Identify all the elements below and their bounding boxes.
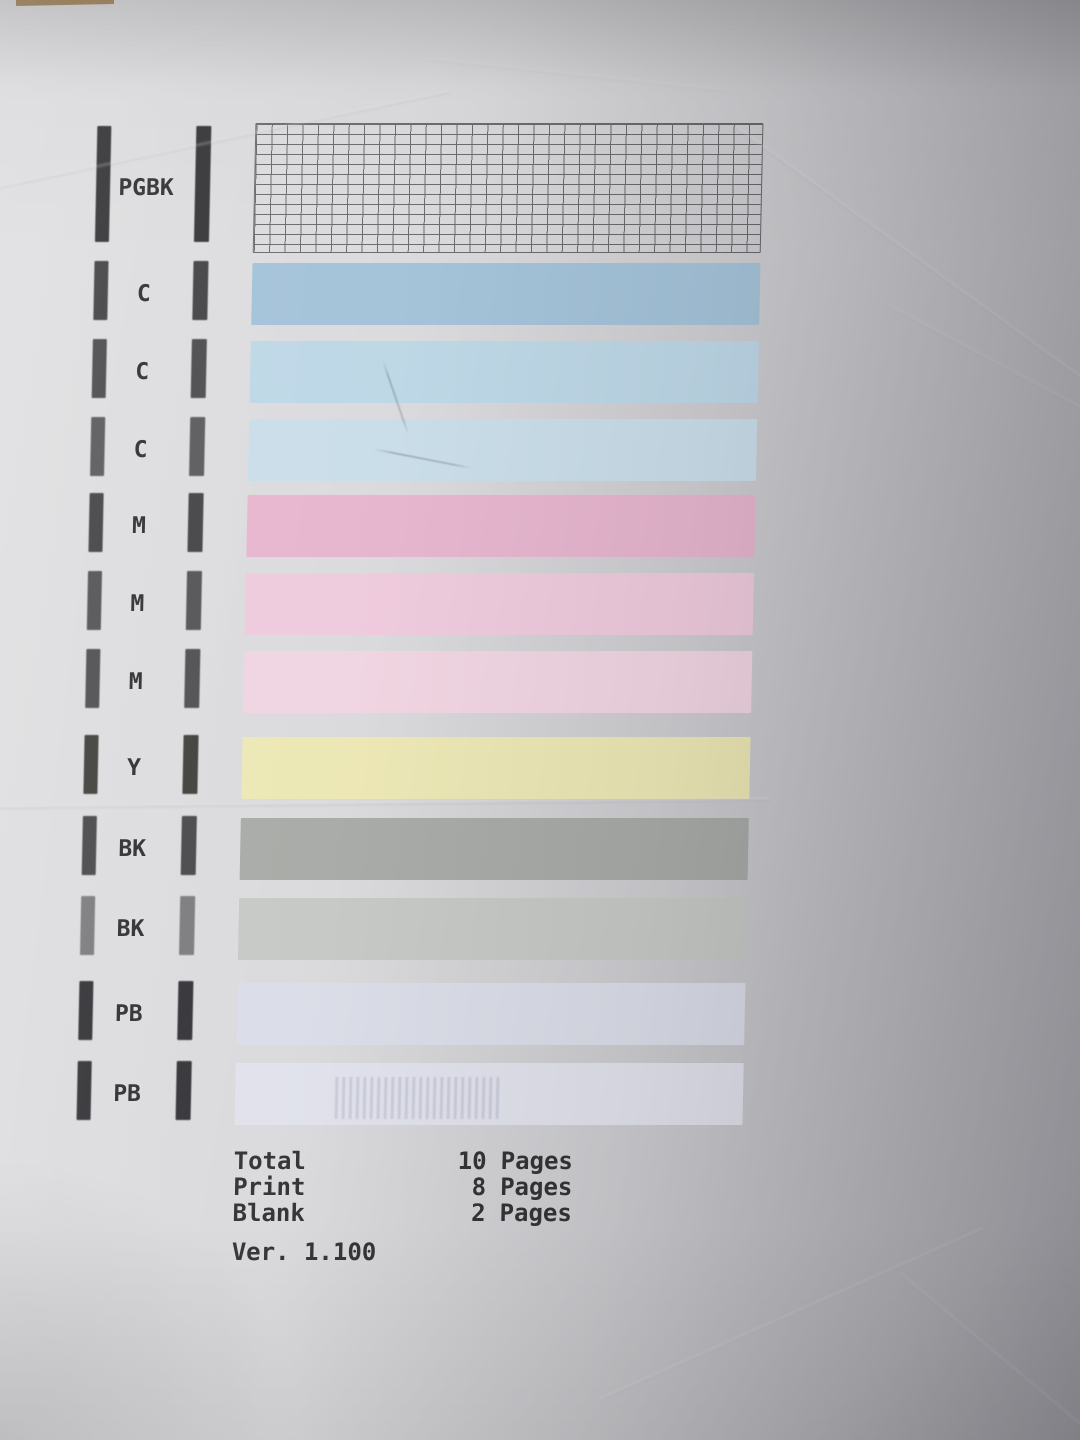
- ink-bar: [238, 898, 747, 960]
- ink-bar: [245, 573, 754, 635]
- ink-label: BK: [85, 915, 176, 943]
- registration-mark-right: [184, 649, 200, 708]
- count-label: Total: [233, 1148, 457, 1174]
- ink-bar: [250, 341, 759, 403]
- registration-mark-right: [182, 735, 198, 794]
- registration-mark-right: [189, 417, 205, 476]
- faint-print-banding: [335, 1077, 504, 1119]
- ink-bar: [240, 818, 749, 880]
- registration-mark-right: [181, 816, 197, 875]
- count-unit: Pages: [499, 1199, 572, 1227]
- ink-bar: [243, 651, 752, 713]
- ink-row: M: [0, 573, 1068, 635]
- ink-label: C: [97, 358, 188, 386]
- count-value: 10: [456, 1148, 487, 1174]
- registration-mark-right: [179, 896, 195, 955]
- ink-label: Y: [89, 754, 180, 782]
- page-count-line: Blank2Pages: [232, 1200, 572, 1226]
- ink-label: M: [92, 590, 183, 618]
- ink-row: Y: [0, 737, 1065, 799]
- ink-row: M: [0, 651, 1066, 713]
- count-value: 8: [456, 1174, 487, 1200]
- ink-label: PB: [82, 1080, 173, 1108]
- registration-mark-right: [186, 571, 202, 630]
- ink-bar: [236, 983, 745, 1045]
- page-count-line: Total10Pages: [233, 1148, 573, 1174]
- registration-mark-right: [177, 981, 193, 1040]
- ink-bar: [251, 263, 760, 325]
- ink-row: BK: [0, 818, 1063, 880]
- count-label: Print: [233, 1174, 457, 1200]
- ink-bar: [253, 123, 764, 253]
- count-label: Blank: [232, 1200, 456, 1226]
- nozzle-check-sheet: PGBK C C C M M M Y BK: [0, 0, 1080, 1440]
- ink-row: C: [0, 263, 1074, 325]
- page-count-lines: Total10PagesPrint8PagesBlank2Pages: [232, 1148, 573, 1226]
- ink-bar: [248, 419, 757, 481]
- ink-label: M: [90, 668, 181, 696]
- ink-row: C: [0, 341, 1073, 403]
- ink-row: PGBK: [0, 123, 1077, 253]
- registration-mark-right: [191, 339, 207, 398]
- ink-bar: [234, 1063, 743, 1125]
- ink-row: PB: [0, 983, 1059, 1045]
- ink-row: C: [0, 419, 1071, 481]
- ink-label: BK: [87, 835, 178, 863]
- page-count-line: Print8Pages: [233, 1174, 573, 1200]
- count-unit: Pages: [500, 1173, 573, 1201]
- ink-row: BK: [0, 898, 1061, 960]
- ink-label: C: [99, 280, 190, 308]
- version-line: Ver. 1.100: [232, 1239, 572, 1265]
- page-count-block: Total10PagesPrint8PagesBlank2Pages Ver. …: [232, 1148, 574, 1265]
- ink-bar: [246, 495, 755, 557]
- registration-mark-right: [176, 1061, 192, 1120]
- ink-label: PGBK: [101, 174, 192, 202]
- count-value: 2: [455, 1200, 486, 1226]
- ink-row: M: [0, 495, 1070, 557]
- count-unit: Pages: [500, 1147, 573, 1175]
- photographed-test-page: PGBK C C C M M M Y BK: [0, 0, 1080, 1440]
- ink-row: PB: [0, 1063, 1058, 1125]
- registration-mark-right: [187, 493, 203, 552]
- ink-label: C: [95, 436, 186, 464]
- ink-label: PB: [83, 1000, 174, 1028]
- registration-mark-right: [192, 261, 208, 320]
- ink-label: M: [94, 512, 185, 540]
- ink-bar: [241, 737, 750, 799]
